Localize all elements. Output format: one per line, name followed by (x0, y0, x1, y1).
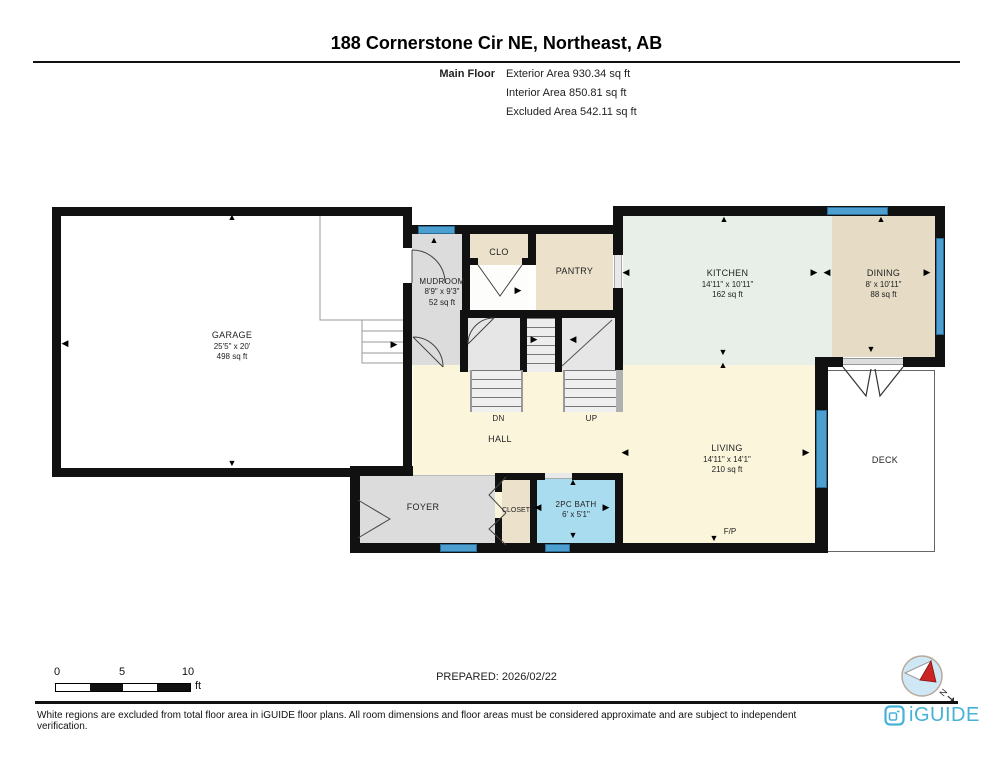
stairs-down-label: DN (472, 414, 525, 424)
plan-linework (0, 0, 993, 768)
hall-label: HALL (470, 434, 530, 446)
dimension-arrow-icon: ◀ (619, 448, 631, 457)
foyer-label: FOYER (358, 502, 488, 514)
deck-label: DECK (829, 455, 941, 467)
dimension-arrow-icon: ▶ (800, 448, 812, 457)
dimension-arrow-icon: ▶ (512, 286, 524, 295)
dimension-arrow-icon: ▼ (708, 534, 720, 543)
mudroom-hall-door-arc (413, 337, 443, 367)
dimension-arrow-icon: ◀ (532, 503, 544, 512)
closet-label: CLOSET (498, 506, 534, 515)
dimension-arrow-icon: ▲ (567, 478, 579, 487)
patio-french-doors (843, 367, 903, 396)
garage-label: GARAGE 25'5" x 20' 498 sq ft (132, 330, 332, 362)
prepared-date: PREPARED: 2026/02/22 (0, 671, 993, 683)
dimension-arrow-icon: ▲ (428, 236, 440, 245)
clo-label: CLO (470, 247, 528, 259)
dimension-arrow-icon: ▼ (717, 348, 729, 357)
iguide-logo-icon (884, 705, 905, 726)
north-label: N (937, 687, 949, 698)
dimension-arrow-icon: ▼ (865, 345, 877, 354)
dimension-arrow-icon: ▲ (226, 213, 238, 222)
iguide-logo: iGUIDE (884, 704, 980, 727)
dimension-arrow-icon: ▶ (921, 268, 933, 277)
scale-segment (56, 684, 90, 691)
scale-segment (123, 684, 157, 691)
dimension-arrow-icon: ◀ (821, 268, 833, 277)
floor-plan: GARAGE 25'5" x 20' 498 sq ft MUDROOM 8'9… (0, 0, 993, 768)
dimension-arrow-icon: ◀ (59, 339, 71, 348)
iguide-logo-text: iGUIDE (909, 704, 980, 727)
stairs-up-label: UP (565, 414, 618, 424)
basement-stairs-door-arc (468, 318, 494, 344)
dimension-arrow-icon: ▲ (718, 215, 730, 224)
compass: N (896, 652, 954, 708)
dimension-arrow-icon: ◀ (567, 335, 579, 344)
dimension-arrow-icon: ▶ (388, 340, 400, 349)
dimension-arrow-icon: ▶ (808, 268, 820, 277)
dimension-arrow-icon: ▼ (567, 531, 579, 540)
dimension-arrow-icon: ▶ (600, 503, 612, 512)
living-label: LIVING 14'11" x 14'1" 210 sq ft (627, 443, 827, 475)
dimension-arrow-icon: ▶ (528, 335, 540, 344)
kitchen-label: KITCHEN 14'11" x 10'11" 162 sq ft (623, 268, 832, 300)
dimension-arrow-icon: ▲ (875, 215, 887, 224)
dimension-arrow-icon: ▼ (226, 459, 238, 468)
footer-divider (35, 701, 958, 704)
mudroom-label: MUDROOM 8'9" x 9'3" 52 sq ft (406, 277, 478, 308)
scale-segment (90, 684, 124, 691)
pantry-label: PANTRY (536, 266, 613, 278)
dimension-arrow-icon: ◀ (620, 268, 632, 277)
scale-bar (55, 683, 191, 692)
scale-segment (157, 684, 191, 691)
dimension-arrow-icon: ▲ (717, 361, 729, 370)
dining-label: DINING 8' x 10'11" 88 sq ft (832, 268, 935, 300)
floorplan-page: 188 Cornerstone Cir NE, Northeast, AB Ma… (0, 0, 993, 768)
disclaimer-text: White regions are excluded from total fl… (37, 710, 837, 732)
